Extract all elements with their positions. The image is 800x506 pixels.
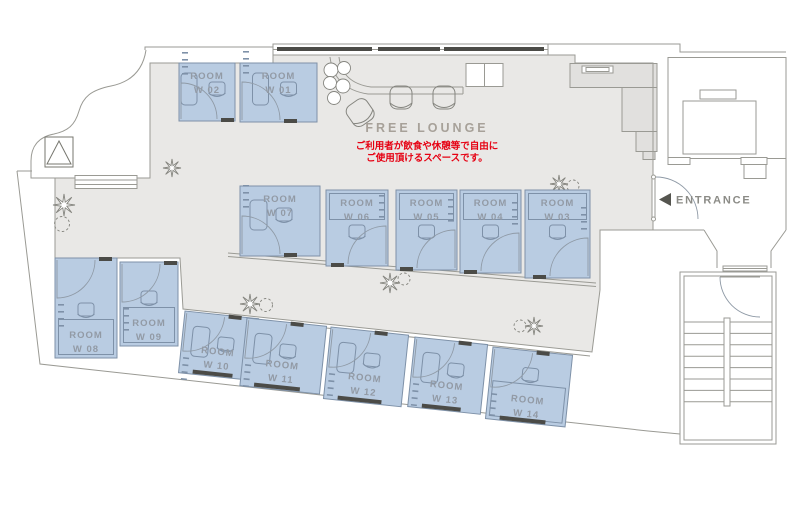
wall-hatch xyxy=(58,325,64,327)
entrance-arrow-icon xyxy=(659,193,671,206)
lounge-note-line2: ご使用頂けるスペースです。 xyxy=(366,152,487,164)
wall-hatch xyxy=(512,216,518,218)
room-w-05: ROOMW 05 xyxy=(396,190,457,271)
wall-hatch xyxy=(123,315,129,317)
door-sill xyxy=(221,118,234,122)
door-sill xyxy=(331,263,344,267)
floor-plan-svg: ENTRANCE ROOMW 01ROOMW 02ROOMW 03ROOMW 0… xyxy=(0,0,800,506)
room-label: ROOM xyxy=(410,198,444,209)
north-east-outline xyxy=(548,44,786,52)
wall-hatch xyxy=(243,199,249,201)
room-number: W 05 xyxy=(413,212,439,223)
wall-hatch xyxy=(58,304,64,306)
wall-hatch xyxy=(379,202,385,204)
wall-hatch xyxy=(58,318,64,320)
wall-hatch xyxy=(512,202,518,204)
cloud-wall xyxy=(31,50,150,178)
wall-hatch xyxy=(58,311,64,313)
room-number: W 02 xyxy=(194,85,220,96)
room-w-04: ROOMW 04 xyxy=(460,190,521,274)
wall-hatch xyxy=(123,329,129,331)
wall-hatch xyxy=(123,308,129,310)
wall-hatch xyxy=(448,213,454,215)
entrance-hall xyxy=(653,158,786,271)
wall-hatch xyxy=(243,185,249,187)
room-label: ROOM xyxy=(69,330,103,341)
room-number: W 07 xyxy=(267,208,293,219)
west-window xyxy=(75,176,137,189)
wall-hatch xyxy=(581,228,587,230)
wall-hatch xyxy=(448,206,454,208)
door-sill xyxy=(284,119,297,123)
room-number: W 03 xyxy=(544,212,570,223)
room-w-07: ROOMW 07 xyxy=(240,185,320,257)
room-w-12: ROOMW 12 xyxy=(323,326,408,407)
wall-hatch xyxy=(182,59,188,61)
wall-hatch xyxy=(379,195,385,197)
room-number: W 09 xyxy=(136,332,162,343)
door-sill xyxy=(99,257,112,261)
room-label: ROOM xyxy=(190,71,224,82)
elevator xyxy=(668,58,786,165)
room-number: W 04 xyxy=(477,212,503,223)
room-w-02: ROOMW 02 xyxy=(179,52,235,122)
wall-hatch xyxy=(243,65,249,67)
room-label: ROOM xyxy=(132,318,166,329)
wall-hatch xyxy=(512,223,518,225)
room-w-09: ROOMW 09 xyxy=(120,261,178,346)
wall-hatch xyxy=(512,209,518,211)
door-sill xyxy=(400,267,413,271)
room-w-03: ROOMW 03 xyxy=(525,190,590,279)
room-w-08: ROOMW 08 xyxy=(55,257,117,358)
wall-hatch xyxy=(581,207,587,209)
room-number: W 08 xyxy=(73,344,99,355)
wall-hatch xyxy=(448,199,454,201)
room-label: ROOM xyxy=(541,198,575,209)
door-sill xyxy=(464,270,477,274)
wall-hatch xyxy=(243,58,249,60)
room-w-14: ROOMW 14 xyxy=(485,346,572,427)
room-label: ROOM xyxy=(262,71,296,82)
door-sill xyxy=(164,261,177,265)
wall-hatch xyxy=(182,66,188,68)
free-lounge-label: FREE LOUNGE xyxy=(365,121,488,135)
wall-hatch xyxy=(581,214,587,216)
room-label: ROOM xyxy=(474,198,508,209)
wall-hatch xyxy=(379,216,385,218)
plant-icon xyxy=(163,159,181,177)
floor-plan-page: ENTRANCE ROOMW 01ROOMW 02ROOMW 03ROOMW 0… xyxy=(0,0,800,506)
room-w-06: ROOMW 06 xyxy=(326,190,388,267)
door-sill xyxy=(533,275,546,279)
wall-hatch xyxy=(243,72,249,74)
wall-hatch xyxy=(448,220,454,222)
wall-hatch xyxy=(581,221,587,223)
north-west-outline xyxy=(145,47,273,50)
lounge-note-line1: ご利用者が飲食や休憩等で自由に xyxy=(356,140,499,152)
room-w-11: ROOMW 11 xyxy=(240,317,327,395)
wall-hatch xyxy=(243,192,249,194)
wall-hatch xyxy=(182,73,188,75)
wall-hatch xyxy=(123,322,129,324)
room-area xyxy=(55,258,117,358)
room-w-13: ROOMW 13 xyxy=(408,336,488,414)
wall-hatch xyxy=(243,51,249,53)
wall-hatch xyxy=(379,209,385,211)
room-number: W 01 xyxy=(265,85,291,96)
room-label: ROOM xyxy=(263,194,297,205)
staircase xyxy=(680,272,776,444)
room-label: ROOM xyxy=(340,198,374,209)
room-number: W 06 xyxy=(344,212,370,223)
door-sill xyxy=(284,253,297,257)
wall-hatch xyxy=(243,206,249,208)
wall-hatch xyxy=(182,52,188,54)
north-window-band xyxy=(273,44,548,55)
entrance-label: ENTRANCE xyxy=(676,195,752,207)
